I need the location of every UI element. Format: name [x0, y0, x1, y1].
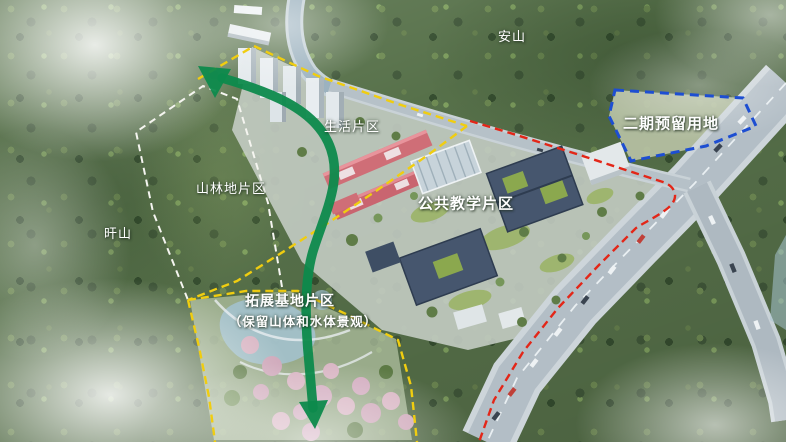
label-anshan-mountain: 安山	[498, 30, 526, 46]
label-teaching-zone: 公共教学片区	[418, 195, 514, 214]
boundary-campus-yellow-dashed	[188, 46, 467, 442]
landscape-axis-arrow	[198, 66, 334, 429]
label-forest-zone: 山林地片区	[196, 182, 266, 198]
label-phase2-reserved-land: 二期预留用地	[623, 115, 719, 134]
arrowhead-south	[299, 400, 328, 429]
label-expansion-zone: 拓展基地片区	[245, 293, 335, 311]
label-living-zone: 生活片区	[324, 120, 380, 136]
label-expansion-zone-note: （保留山体和水体景观）	[229, 314, 378, 330]
label-ganshan-mountain: 旰山	[104, 227, 132, 243]
boundary-redline-dashed	[470, 121, 675, 442]
annotation-layer	[0, 0, 786, 442]
masterplan-aerial-rendering: 安山 二期预留用地 生活片区 山林地片区 旰山 公共教学片区 拓展基地片区 （保…	[0, 0, 786, 442]
